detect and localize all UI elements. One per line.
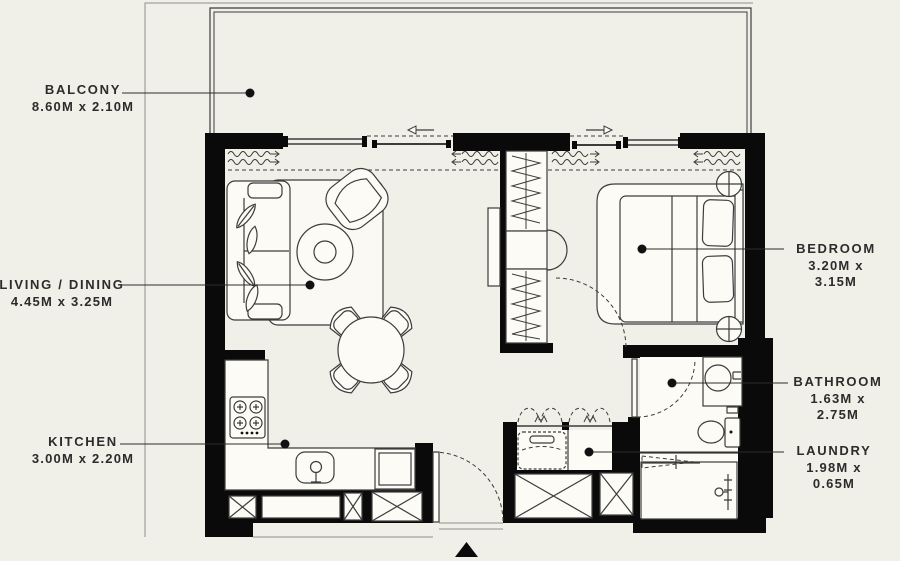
room-dimensions: 4.45M x 3.25M bbox=[0, 294, 125, 311]
room-name: KITCHEN bbox=[32, 434, 134, 451]
balcony-railing bbox=[210, 8, 751, 133]
room-name: LIVING / DINING bbox=[0, 277, 125, 294]
bathroom-marker bbox=[668, 379, 677, 388]
label-living-dining: LIVING / DINING 4.45M x 3.25M bbox=[0, 277, 125, 310]
curtain-symbols bbox=[228, 151, 742, 170]
coffee-table bbox=[297, 224, 353, 280]
laundry-marker bbox=[585, 448, 594, 457]
ceiling-light bbox=[717, 172, 742, 197]
balcony-marker bbox=[246, 89, 255, 98]
living-marker bbox=[306, 281, 315, 290]
bed bbox=[597, 184, 743, 324]
dishwasher bbox=[375, 449, 415, 489]
bifold-doors bbox=[518, 408, 610, 422]
entrance-arrow-icon bbox=[455, 542, 478, 557]
stove bbox=[230, 397, 265, 438]
ceiling-light bbox=[717, 317, 742, 342]
label-bedroom: BEDROOM 3.20M x 3.15M bbox=[796, 241, 876, 291]
room-dimensions: 1.98M x 0.65M bbox=[797, 460, 872, 493]
paper-holder bbox=[727, 407, 738, 413]
pillow bbox=[702, 199, 734, 246]
floor-plan: BALCONY 8.60M x 2.10M LIVING / DINING 4.… bbox=[0, 0, 900, 561]
headboard bbox=[735, 190, 743, 322]
shower bbox=[641, 455, 737, 519]
label-bathroom: BATHROOM 1.63M x 2.75M bbox=[793, 374, 882, 424]
room-name: BATHROOM bbox=[793, 374, 882, 391]
dining-set bbox=[326, 303, 417, 398]
room-dimensions: 3.20M x 3.15M bbox=[796, 258, 876, 291]
label-balcony: BALCONY 8.60M x 2.10M bbox=[32, 82, 134, 115]
bathroom-door-leaf bbox=[632, 359, 637, 417]
wardrobe bbox=[506, 151, 567, 343]
entry-door-swing bbox=[433, 452, 503, 522]
room-name: LAUNDRY bbox=[797, 443, 872, 460]
label-laundry: LAUNDRY 1.98M x 0.65M bbox=[797, 443, 872, 493]
plan-linework bbox=[0, 0, 900, 561]
window-living bbox=[283, 136, 453, 148]
bedroom-marker bbox=[638, 245, 647, 254]
entry-door-leaf bbox=[433, 452, 439, 522]
bathroom-fixtures bbox=[632, 357, 742, 519]
dining-table bbox=[338, 317, 404, 383]
room-dimensions: 1.63M x 2.75M bbox=[793, 391, 882, 424]
label-kitchen: KITCHEN 3.00M x 2.20M bbox=[32, 434, 134, 467]
pillow bbox=[702, 255, 734, 302]
tv-console bbox=[488, 208, 500, 286]
room-dimensions: 8.60M x 2.10M bbox=[32, 99, 134, 116]
washbasin bbox=[703, 357, 742, 406]
kitchen-marker bbox=[281, 440, 290, 449]
room-dimensions: 3.00M x 2.20M bbox=[32, 451, 134, 468]
window-bedroom bbox=[570, 136, 683, 149]
laundry-closet bbox=[517, 408, 612, 470]
sink bbox=[296, 452, 334, 483]
slide-direction-arrows bbox=[408, 126, 612, 134]
room-name: BALCONY bbox=[32, 82, 134, 99]
room-name: BEDROOM bbox=[796, 241, 876, 258]
sofa bbox=[227, 181, 290, 320]
